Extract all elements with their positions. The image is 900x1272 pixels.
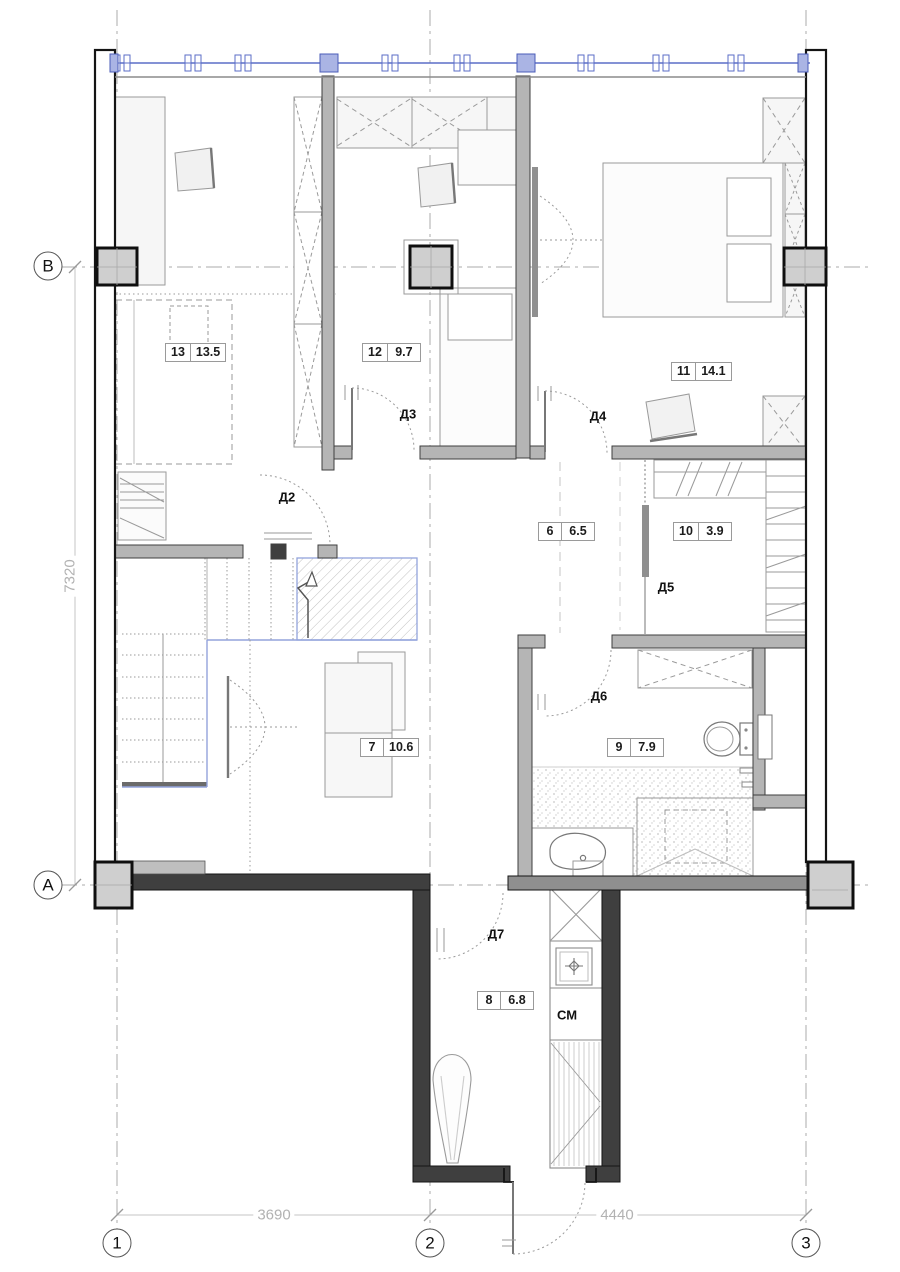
laundry-sink-icon xyxy=(556,948,592,985)
grid-bubble-row-v: В xyxy=(34,252,63,281)
entry-door xyxy=(502,1182,585,1254)
door-label-d7: Д7 xyxy=(488,927,505,942)
grid-bubble-col-1: 1 xyxy=(103,1229,132,1258)
room-number: 13 xyxy=(166,344,191,361)
door-d2 xyxy=(260,475,330,545)
room-label-10: 10 3.9 xyxy=(673,522,732,541)
room-area: 3.9 xyxy=(699,523,731,540)
door-label-d3: Д3 xyxy=(400,407,417,422)
entry-threshold xyxy=(504,1168,596,1182)
door-label-d6: Д6 xyxy=(591,689,608,704)
room10-closet xyxy=(654,460,806,632)
ironing-board xyxy=(433,1055,471,1164)
hall-wardrobe xyxy=(638,650,752,688)
grid-bubble-col-2: 2 xyxy=(416,1229,445,1258)
door-label-d5: Д5 xyxy=(658,580,675,595)
room-area: 6.8 xyxy=(501,992,533,1009)
door-d6 xyxy=(538,650,611,716)
room-number: 9 xyxy=(608,739,631,756)
room-label-13: 13 13.5 xyxy=(165,343,226,362)
room-number: 8 xyxy=(478,992,501,1009)
door-label-d2: Д2 xyxy=(279,490,296,505)
room-area: 14.1 xyxy=(696,363,730,380)
grid-bubble-row-a: А xyxy=(34,871,63,900)
room-number: 7 xyxy=(361,739,384,756)
room-area: 9.7 xyxy=(388,344,420,361)
door-label-d4: Д4 xyxy=(590,409,607,424)
floor-plan: 13 13.5 12 9.7 11 14.1 6 6.5 10 3.9 7 10… xyxy=(0,0,900,1272)
room-label-7: 7 10.6 xyxy=(360,738,419,757)
room-label-12: 12 9.7 xyxy=(362,343,421,362)
room-number: 12 xyxy=(363,344,388,361)
room-label-11: 11 14.1 xyxy=(671,362,732,381)
grid-bubble-col-3: 3 xyxy=(792,1229,821,1258)
floor-plan-drawing xyxy=(0,0,900,1272)
room-label-9: 9 7.9 xyxy=(607,738,664,757)
room-number: 6 xyxy=(539,523,562,540)
toilet-icon xyxy=(704,722,753,756)
room-area: 10.6 xyxy=(384,739,418,756)
room-number: 11 xyxy=(672,363,696,380)
dimension-left-height: 7320 xyxy=(62,555,79,596)
dimension-span-2-3: 4440 xyxy=(596,1207,637,1224)
room-area: 7.9 xyxy=(631,739,663,756)
room-number: 10 xyxy=(674,523,699,540)
room7-furniture xyxy=(325,652,405,797)
room-area: 13.5 xyxy=(191,344,225,361)
room11-furniture xyxy=(603,98,805,450)
window-band xyxy=(110,54,810,72)
washing-machine-label: СМ xyxy=(557,1008,577,1023)
room-label-8: 8 6.8 xyxy=(477,991,534,1010)
room-label-6: 6 6.5 xyxy=(538,522,595,541)
sink-icon xyxy=(532,828,633,878)
door-d5-pocket xyxy=(620,460,649,634)
room-area: 6.5 xyxy=(562,523,594,540)
dimension-span-1-2: 3690 xyxy=(253,1207,294,1224)
laundry-fittings xyxy=(433,888,602,1168)
